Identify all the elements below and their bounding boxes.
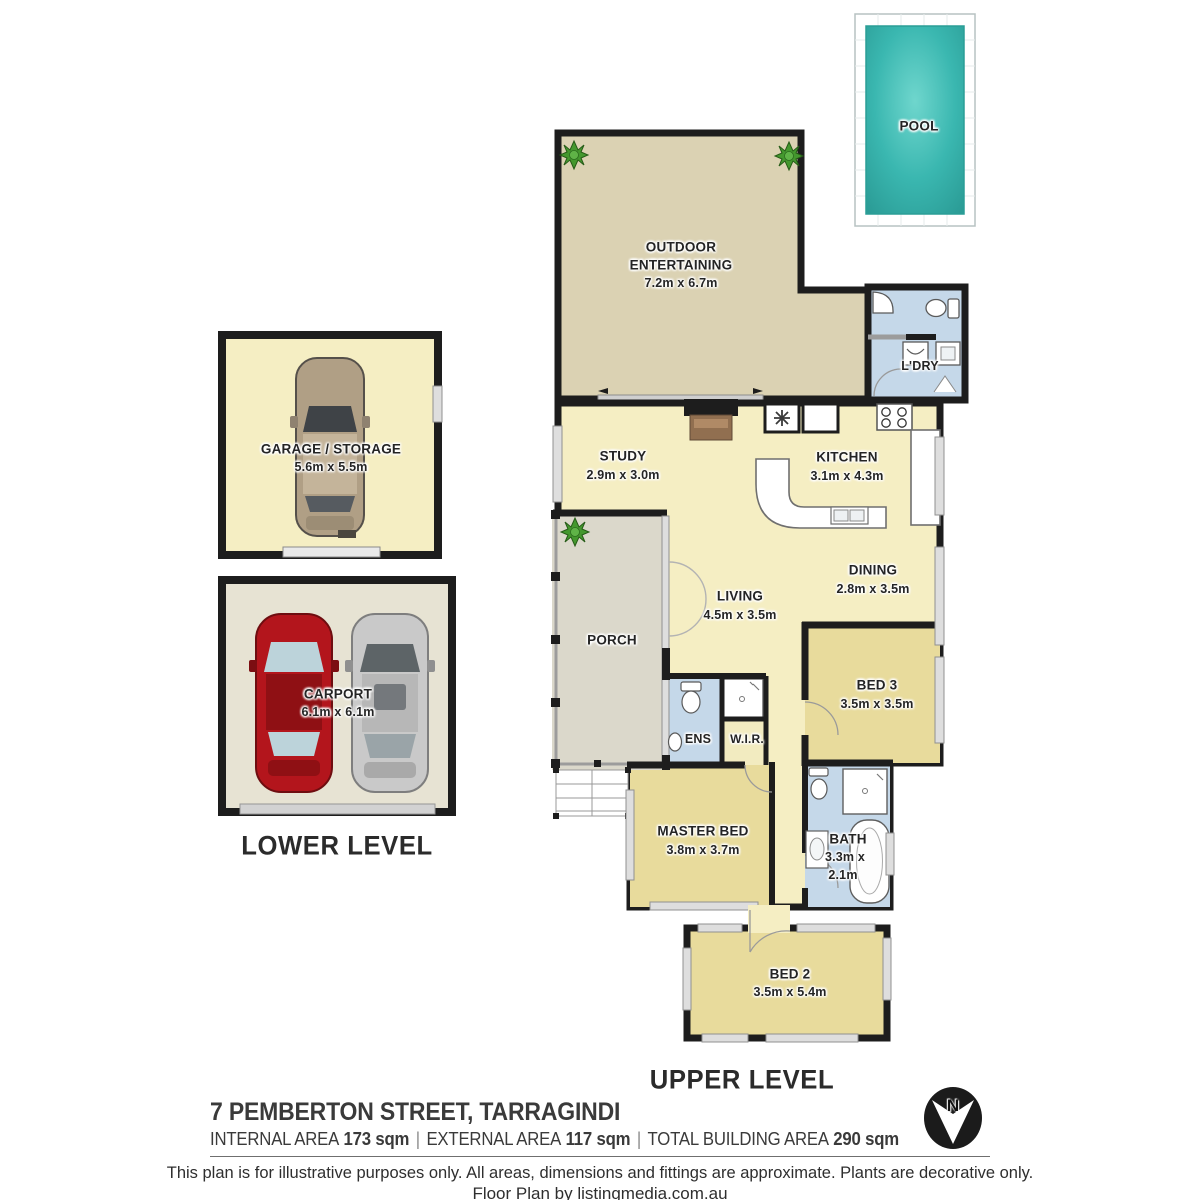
laundry-tub-icon: [936, 342, 960, 365]
kitchen-sink-icon: [831, 507, 868, 524]
living-label: LIVING: [717, 589, 763, 604]
internal-area-value: 173 sqm: [344, 1129, 410, 1149]
external-area-label: EXTERNAL AREA: [426, 1129, 561, 1149]
study-dims: 2.9m x 3.0m: [586, 468, 659, 482]
area-summary: INTERNAL AREA 173 sqm|EXTERNAL AREA 117 …: [210, 1129, 899, 1150]
ens-label: ENS: [685, 732, 711, 746]
floorplan-drawing: [0, 0, 1200, 1200]
outdoor-label-1: OUTDOOR: [646, 240, 716, 255]
kitchen-dims: 3.1m x 4.3m: [810, 469, 883, 483]
shower-icon: [722, 679, 763, 719]
window: [433, 386, 442, 422]
pantry-icon: [765, 404, 799, 432]
pool-label: POOL: [899, 119, 938, 134]
plant-icon: [775, 142, 803, 170]
fireplace-icon: [684, 399, 738, 440]
bed3-label: BED 3: [857, 678, 898, 693]
internal-area-label: INTERNAL AREA: [210, 1129, 339, 1149]
master-bed-dims: 3.8m x 3.7m: [666, 843, 739, 857]
wir-label: W.I.R.: [730, 732, 764, 746]
bath-label: BATH: [829, 832, 866, 847]
lower-level-label: LOWER LEVEL: [241, 831, 433, 862]
toilet-icon: [926, 299, 959, 318]
bath-dims-1: 3.3m x: [825, 850, 865, 864]
separator: |: [409, 1129, 426, 1149]
dining-label: DINING: [849, 563, 897, 578]
total-area-label: TOTAL BUILDING AREA: [648, 1129, 829, 1149]
outdoor-dims: 7.2m x 6.7m: [644, 276, 717, 290]
bath-dims-2: 2.1m: [828, 868, 857, 882]
separator: |: [630, 1129, 647, 1149]
shower-icon: [843, 769, 887, 814]
stairs: [553, 767, 631, 819]
carport-opening: [240, 804, 435, 814]
credit-text: Floor Plan by listingmedia.com.au: [0, 1184, 1200, 1200]
car-silver-icon: [345, 614, 435, 792]
plant-icon: [561, 518, 589, 546]
kitchen-label: KITCHEN: [816, 450, 877, 465]
carport-dims: 6.1m x 6.1m: [301, 705, 374, 719]
laundry-label: L'DRY: [901, 359, 939, 373]
outdoor-label-2: ENTERTAINING: [630, 258, 733, 273]
basin-icon: [669, 733, 682, 751]
dining-dims: 2.8m x 3.5m: [836, 582, 909, 596]
bed2-dims: 3.5m x 5.4m: [753, 985, 826, 999]
bed2-door-opening: [748, 905, 790, 933]
garage-dims: 5.6m x 5.5m: [294, 460, 367, 474]
external-area-value: 117 sqm: [566, 1129, 631, 1149]
toilet-icon: [681, 682, 701, 713]
footer-divider: [210, 1156, 990, 1157]
laundry-area: [868, 287, 965, 400]
disclaimer-text: This plan is for illustrative purposes o…: [18, 1163, 1182, 1183]
fridge-space: [803, 404, 838, 432]
total-area-value: 290 sqm: [833, 1129, 899, 1149]
bed3-dims: 3.5m x 3.5m: [840, 697, 913, 711]
garage-label: GARAGE / STORAGE: [261, 442, 401, 457]
study-label: STUDY: [600, 449, 647, 464]
bed3-floor: [805, 625, 940, 763]
stove-icon: [877, 404, 912, 430]
bed2-label: BED 2: [770, 967, 811, 982]
master-bed-label: MASTER BED: [657, 824, 748, 839]
upper-level-plan: [551, 399, 944, 1042]
carport-label: CARPORT: [304, 687, 372, 702]
floorplan-page: POOL OUTDOOR ENTERTAINING 7.2m x 6.7m L'…: [0, 0, 1200, 1200]
living-dims: 4.5m x 3.5m: [703, 608, 776, 622]
plant-icon: [560, 141, 588, 169]
upper-level-label: UPPER LEVEL: [650, 1065, 834, 1096]
car-red-icon: [249, 614, 339, 792]
porch-label: PORCH: [587, 633, 637, 648]
toilet-icon: [809, 768, 828, 799]
compass-north-label: N: [947, 1096, 959, 1116]
property-address: 7 PEMBERTON STREET, TARRAGINDI: [210, 1098, 620, 1127]
garage-door: [283, 547, 380, 557]
